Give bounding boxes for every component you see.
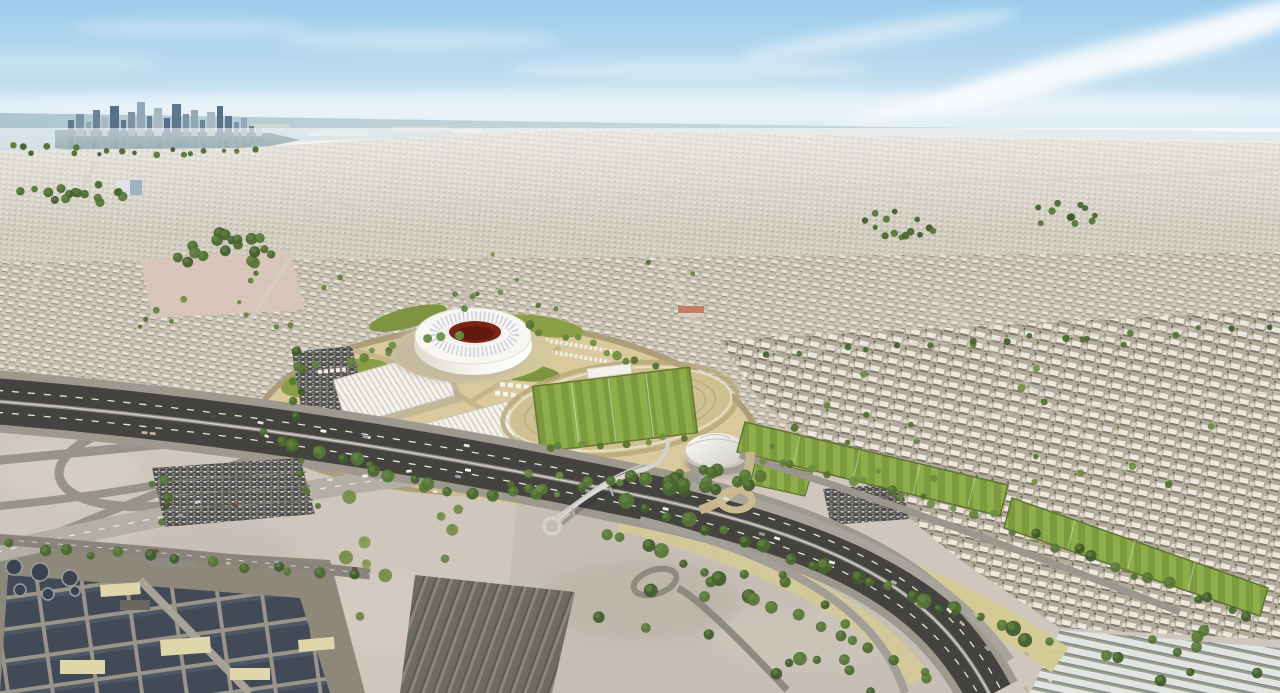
tree-highlight	[1114, 653, 1120, 659]
tree-highlight	[998, 621, 1004, 627]
tree	[631, 356, 639, 364]
tree-highlight	[261, 246, 265, 250]
tree	[143, 317, 148, 322]
gray-warehouses	[400, 575, 575, 693]
tree-highlight	[341, 552, 348, 559]
car	[362, 474, 368, 477]
car	[274, 560, 279, 563]
car	[154, 549, 159, 552]
tree	[1054, 200, 1061, 207]
tree-highlight	[383, 471, 390, 478]
tree	[1062, 335, 1069, 342]
tree-highlight	[251, 247, 257, 253]
tree	[114, 189, 122, 197]
tree	[927, 342, 933, 348]
tree-highlight	[850, 477, 855, 482]
tree	[322, 285, 327, 290]
tree	[1172, 332, 1179, 339]
tree-highlight	[423, 479, 429, 485]
tree	[990, 510, 997, 517]
tree	[914, 439, 919, 444]
tree	[163, 503, 169, 509]
tree	[1009, 529, 1016, 536]
tree-highlight	[1196, 596, 1200, 600]
tree-highlight	[369, 466, 375, 472]
tree-highlight	[284, 568, 288, 572]
tree	[180, 296, 187, 303]
tree-highlight	[361, 354, 366, 359]
tree	[1038, 220, 1044, 226]
tree-highlight	[294, 363, 298, 367]
tree-highlight	[866, 578, 871, 583]
tree-highlight	[970, 511, 975, 516]
tree	[659, 433, 666, 440]
tree-highlight	[248, 256, 254, 262]
tree	[616, 479, 623, 486]
tree	[1127, 330, 1133, 336]
tree	[153, 307, 160, 314]
tree	[274, 324, 279, 329]
tree	[917, 232, 923, 238]
tree	[234, 148, 239, 153]
tree	[575, 334, 582, 341]
tree-highlight	[174, 254, 179, 259]
tree	[1072, 220, 1079, 227]
tree	[892, 209, 898, 215]
tree-highlight	[17, 188, 21, 192]
tree-highlight	[626, 471, 632, 477]
tree-highlight	[840, 655, 845, 660]
tree-highlight	[437, 333, 442, 338]
tree	[920, 493, 926, 499]
tree-highlight	[733, 477, 739, 483]
tree-highlight	[646, 585, 653, 592]
tree	[863, 347, 869, 353]
tree-highlight	[935, 605, 940, 610]
cloud	[280, 31, 560, 49]
tree-highlight	[818, 560, 826, 568]
car	[141, 431, 147, 434]
tree-highlight	[616, 533, 621, 538]
tree	[312, 361, 319, 368]
tree-highlight	[678, 479, 685, 486]
tree	[337, 274, 343, 280]
tree-highlight	[794, 610, 800, 616]
tree-highlight	[444, 488, 449, 493]
tree-highlight	[357, 613, 361, 617]
tree-highlight	[234, 236, 239, 241]
tree-highlight	[412, 476, 416, 480]
tree	[1017, 384, 1025, 392]
tree	[43, 143, 50, 150]
tree-highlight	[189, 242, 194, 247]
tree	[10, 142, 16, 148]
tree-highlight	[703, 477, 709, 483]
tree	[73, 144, 80, 151]
tree	[556, 472, 564, 480]
tree	[894, 342, 900, 348]
tree	[1084, 336, 1090, 342]
tree-highlight	[664, 482, 672, 490]
car	[406, 470, 412, 473]
tree	[153, 152, 160, 159]
tree-highlight	[707, 578, 712, 583]
tree-highlight	[351, 570, 356, 575]
tree	[1027, 333, 1033, 339]
tree-highlight	[297, 470, 301, 474]
tree	[845, 344, 852, 351]
tree	[28, 150, 34, 156]
tree	[876, 469, 881, 474]
tree	[908, 422, 914, 428]
tree-highlight	[1242, 613, 1247, 618]
tree	[1121, 342, 1127, 348]
tree	[536, 303, 541, 308]
tree-highlight	[1103, 651, 1108, 656]
tree-highlight	[767, 602, 773, 608]
tree-highlight	[594, 613, 600, 619]
tree	[791, 424, 799, 432]
tree-highlight	[741, 571, 746, 576]
tree-highlight	[663, 513, 668, 518]
tree-highlight	[45, 188, 50, 193]
tree-highlight	[708, 468, 714, 474]
tree-highlight	[928, 501, 932, 505]
tree	[20, 143, 27, 150]
tree	[369, 348, 375, 354]
tree	[97, 152, 101, 156]
tree-highlight	[656, 545, 664, 553]
tree	[652, 363, 659, 370]
tree-highlight	[95, 195, 99, 199]
car	[226, 562, 231, 565]
tree-highlight	[380, 570, 387, 577]
tree	[31, 186, 38, 193]
tree	[823, 471, 830, 478]
tree-highlight	[680, 560, 684, 564]
tree-highlight	[352, 453, 359, 460]
tree-highlight	[360, 537, 366, 543]
tree-highlight	[756, 471, 762, 477]
tree-highlight	[363, 560, 368, 565]
tree-highlight	[1193, 643, 1198, 648]
tree	[1229, 325, 1235, 331]
tree-highlight	[603, 530, 609, 536]
aerial-render	[0, 0, 1280, 693]
tree-highlight	[52, 197, 56, 201]
tree-highlight	[247, 234, 253, 240]
tree-highlight	[642, 624, 647, 629]
tree-highlight	[114, 547, 119, 552]
tree-highlight	[221, 247, 226, 252]
tree-highlight	[339, 455, 344, 460]
car	[585, 489, 590, 492]
tree	[475, 292, 480, 297]
tree	[690, 271, 695, 276]
tree	[860, 371, 867, 378]
tree-highlight	[741, 537, 747, 543]
tree-highlight	[314, 447, 321, 454]
tree	[646, 260, 651, 265]
tree-highlight	[241, 564, 246, 569]
tree	[222, 149, 226, 153]
tree-highlight	[213, 236, 219, 242]
tree	[882, 232, 889, 239]
tree-highlight	[290, 398, 294, 402]
tree	[1035, 205, 1041, 211]
tree	[507, 481, 514, 488]
tree-highlight	[448, 525, 454, 531]
tree-highlight	[1076, 544, 1081, 549]
tree	[149, 481, 156, 488]
car	[268, 565, 273, 568]
tree-highlight	[853, 572, 860, 579]
tree-highlight	[289, 442, 293, 446]
tree	[253, 271, 258, 276]
tree	[863, 412, 869, 418]
tree	[646, 440, 652, 446]
tree	[1041, 399, 1048, 406]
tree-highlight	[641, 474, 648, 481]
tree	[862, 217, 868, 223]
tree-highlight	[191, 248, 197, 254]
tree-highlight	[41, 546, 47, 552]
tree	[563, 334, 569, 340]
tree-highlight	[1020, 634, 1027, 641]
tree	[201, 148, 207, 154]
tree-highlight	[641, 504, 646, 509]
tree-highlight	[88, 553, 92, 557]
tree	[104, 148, 110, 154]
tree	[461, 305, 468, 312]
tree-highlight	[527, 321, 531, 325]
tree-highlight	[1156, 676, 1162, 682]
tree-highlight	[809, 562, 814, 567]
tree-highlight	[837, 632, 842, 637]
tree-highlight	[161, 476, 166, 481]
tree-highlight	[184, 258, 189, 263]
tree-highlight	[918, 595, 926, 603]
tree	[188, 151, 193, 156]
tree-highlight	[614, 352, 619, 357]
tree-highlight	[1046, 638, 1050, 642]
tree-highlight	[822, 601, 827, 606]
car	[1023, 686, 1029, 692]
tree-highlight	[758, 540, 765, 547]
tree-highlight	[171, 555, 176, 560]
tree	[138, 325, 142, 329]
tree-highlight	[683, 513, 691, 521]
tree-highlight	[795, 653, 802, 660]
tree-highlight	[909, 591, 916, 598]
tree-highlight	[712, 485, 718, 491]
tree	[578, 441, 585, 448]
tree	[1048, 207, 1055, 214]
tree	[1067, 214, 1074, 221]
tree	[873, 225, 878, 230]
tree	[1004, 338, 1011, 345]
tree-highlight	[705, 630, 710, 635]
tree	[298, 388, 305, 395]
tree-highlight	[209, 557, 214, 562]
tree-highlight	[1187, 669, 1191, 673]
tree	[681, 435, 688, 442]
tree-highlight	[1143, 573, 1149, 579]
tree-highlight	[884, 582, 889, 587]
tree	[808, 465, 816, 473]
cloud	[70, 20, 310, 36]
tree-highlight	[316, 568, 322, 574]
tree-highlight	[256, 234, 261, 239]
tree-highlight	[890, 656, 895, 661]
tree	[797, 351, 802, 356]
tree-highlight	[525, 470, 529, 474]
tree-highlight	[348, 359, 352, 363]
tree	[248, 278, 254, 284]
tree-highlight	[1253, 669, 1258, 674]
tree	[389, 342, 397, 350]
tree	[930, 475, 937, 482]
tree-highlight	[701, 526, 706, 531]
tree-highlight	[701, 569, 705, 573]
tree-highlight	[146, 550, 152, 556]
tree	[897, 493, 904, 500]
tree-highlight	[787, 555, 793, 561]
tree-highlight	[584, 477, 589, 482]
tree-highlight	[442, 555, 446, 559]
tree-highlight	[260, 429, 264, 433]
tree-highlight	[1203, 593, 1208, 598]
tree	[1129, 463, 1137, 471]
tree-highlight	[525, 485, 530, 490]
tree-highlight	[164, 494, 169, 499]
tree-highlight	[1051, 545, 1056, 550]
tree-highlight	[787, 461, 791, 465]
tree	[623, 441, 631, 449]
tree	[769, 443, 775, 449]
tree-highlight	[720, 526, 724, 530]
tree	[386, 351, 392, 357]
tree-highlight	[293, 412, 297, 416]
tree-highlight	[509, 487, 514, 492]
tree	[243, 312, 248, 317]
tree	[547, 444, 555, 452]
tree	[237, 300, 241, 304]
tree-highlight	[607, 477, 612, 482]
tree	[491, 252, 495, 256]
tree	[119, 148, 125, 154]
tree-highlight	[814, 657, 818, 661]
tree-highlight	[846, 666, 851, 671]
tree	[181, 152, 187, 158]
tree-highlight	[1165, 578, 1171, 584]
tree-highlight	[1193, 632, 1199, 638]
tree-highlight	[1174, 649, 1179, 654]
tree	[950, 506, 956, 512]
tree-highlight	[488, 491, 494, 497]
tree-highlight	[1112, 563, 1117, 568]
tree-highlight	[644, 540, 650, 546]
tree	[891, 230, 898, 237]
tree	[498, 289, 504, 295]
car	[352, 567, 357, 570]
tree	[169, 319, 174, 324]
tree-highlight	[1200, 626, 1206, 632]
tree-highlight	[344, 492, 351, 499]
tree-highlight	[221, 230, 227, 236]
tree-highlight	[468, 489, 474, 495]
tree	[132, 151, 137, 156]
tree-highlight	[1007, 622, 1015, 630]
tree-highlight	[772, 669, 778, 675]
tree-highlight	[1032, 530, 1037, 535]
tree	[622, 358, 629, 365]
tree-highlight	[1087, 551, 1093, 557]
tree-highlight	[199, 252, 204, 257]
tree-highlight	[293, 347, 298, 352]
tree	[554, 491, 560, 497]
tree	[845, 440, 851, 446]
car	[327, 478, 333, 481]
tree-highlight	[1149, 636, 1153, 640]
tree	[914, 217, 920, 223]
tree	[287, 322, 293, 328]
tree-highlight	[849, 637, 854, 642]
tree	[315, 503, 321, 509]
tree-highlight	[786, 660, 790, 664]
cloud	[510, 60, 870, 80]
tree-highlight	[268, 251, 272, 255]
tree	[298, 457, 305, 464]
tree-highlight	[949, 603, 956, 610]
tree-highlight	[780, 572, 784, 576]
tree-highlight	[58, 185, 63, 190]
tree-highlight	[6, 539, 10, 543]
tree	[158, 519, 165, 526]
tree-highlight	[455, 505, 460, 510]
tree	[535, 485, 542, 492]
tree	[95, 181, 103, 189]
tree	[535, 329, 542, 336]
tree	[780, 459, 787, 466]
tree-highlight	[741, 471, 747, 477]
tree	[604, 350, 610, 356]
tree-highlight	[867, 688, 871, 692]
tree	[1077, 469, 1084, 476]
tree-highlight	[424, 335, 428, 339]
tree	[170, 147, 175, 152]
tree	[305, 488, 311, 494]
tree-highlight	[922, 669, 926, 673]
tree-highlight	[748, 594, 755, 601]
tree	[902, 232, 910, 240]
tree	[824, 402, 831, 409]
tree	[469, 294, 475, 300]
tree	[883, 216, 890, 223]
tree-highlight	[62, 195, 67, 200]
tree-highlight	[275, 563, 280, 568]
tree	[1229, 606, 1237, 614]
tree	[1092, 213, 1098, 219]
tree	[289, 378, 297, 386]
tree	[1165, 481, 1172, 488]
tree-highlight	[620, 494, 628, 502]
tree	[1031, 479, 1037, 485]
tree-highlight	[278, 437, 283, 442]
tree	[1208, 423, 1215, 430]
tree	[515, 278, 520, 283]
tree-highlight	[701, 592, 706, 597]
